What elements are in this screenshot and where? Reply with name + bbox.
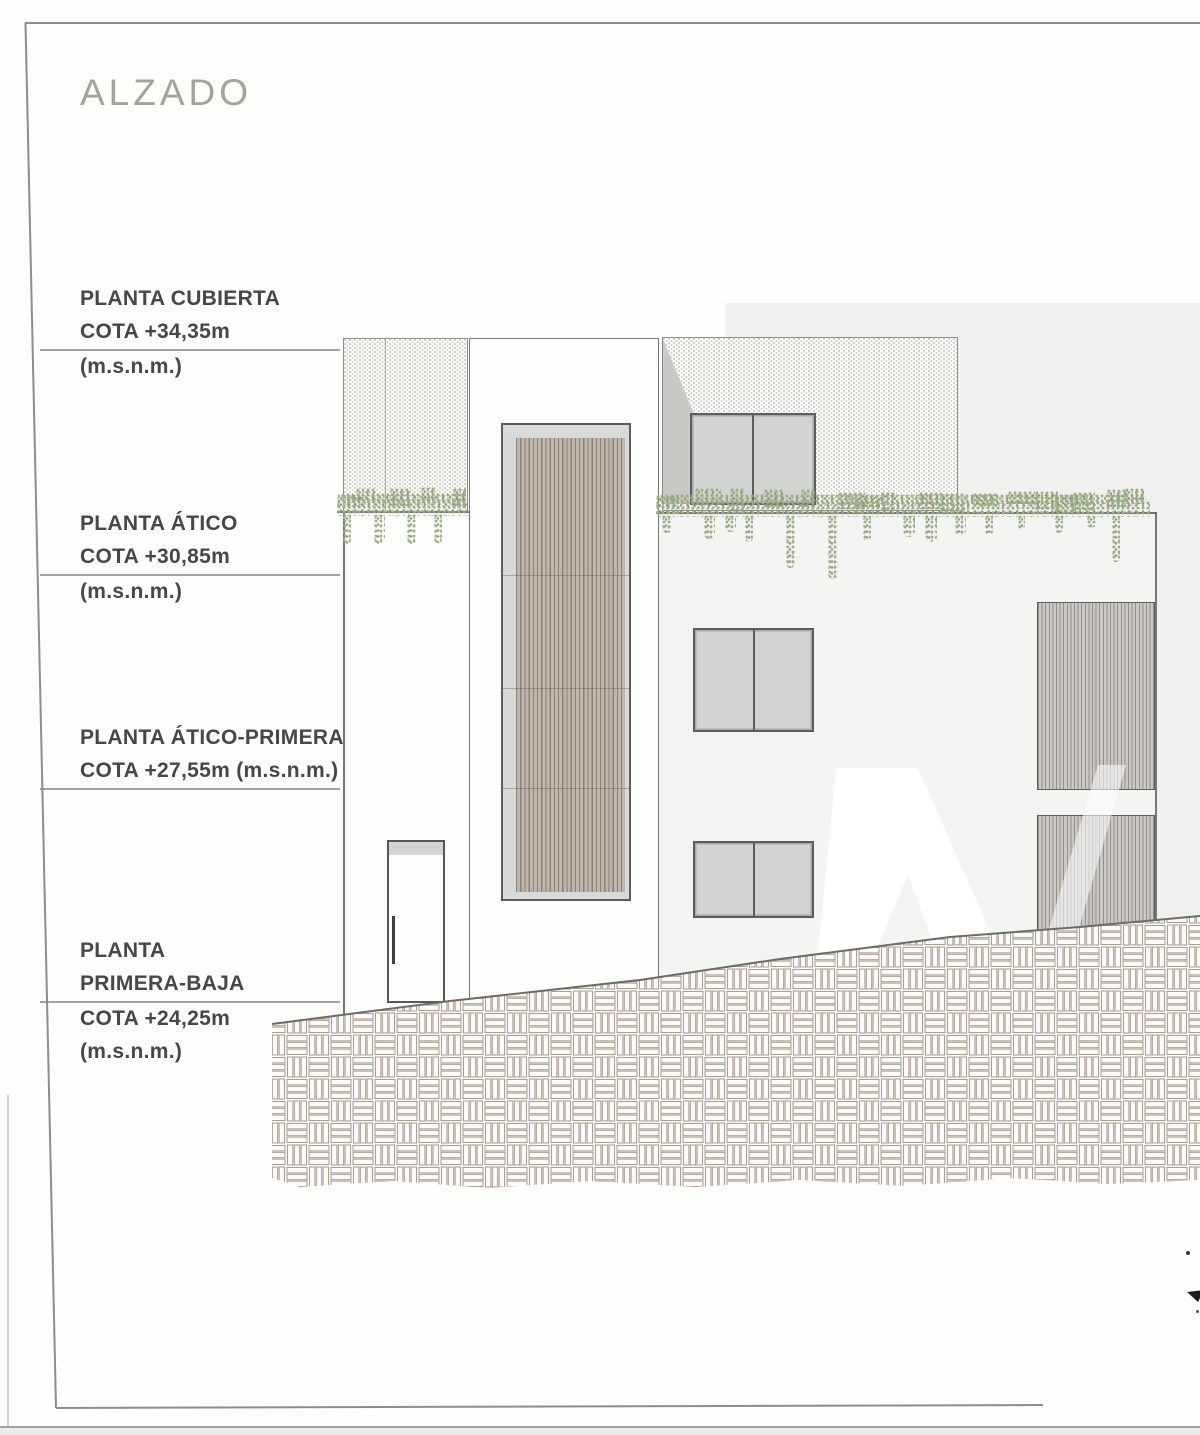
elevation-sheet: PLANTA CUBIERTACOTA +34,35m(m.s.n.m.)PLA… [0,0,1200,1435]
stray-mark-dot [1186,1251,1190,1255]
sheet-border-bottom [56,1405,1043,1408]
stray-mark-wedge [1187,1290,1200,1302]
stray-mark-dot [1196,1310,1199,1313]
photo-page-edge [7,1095,9,1428]
page-edge-shadow [0,1428,1200,1435]
sheet-frame-layer [0,0,1200,1435]
sheet-border-left [26,23,57,1408]
